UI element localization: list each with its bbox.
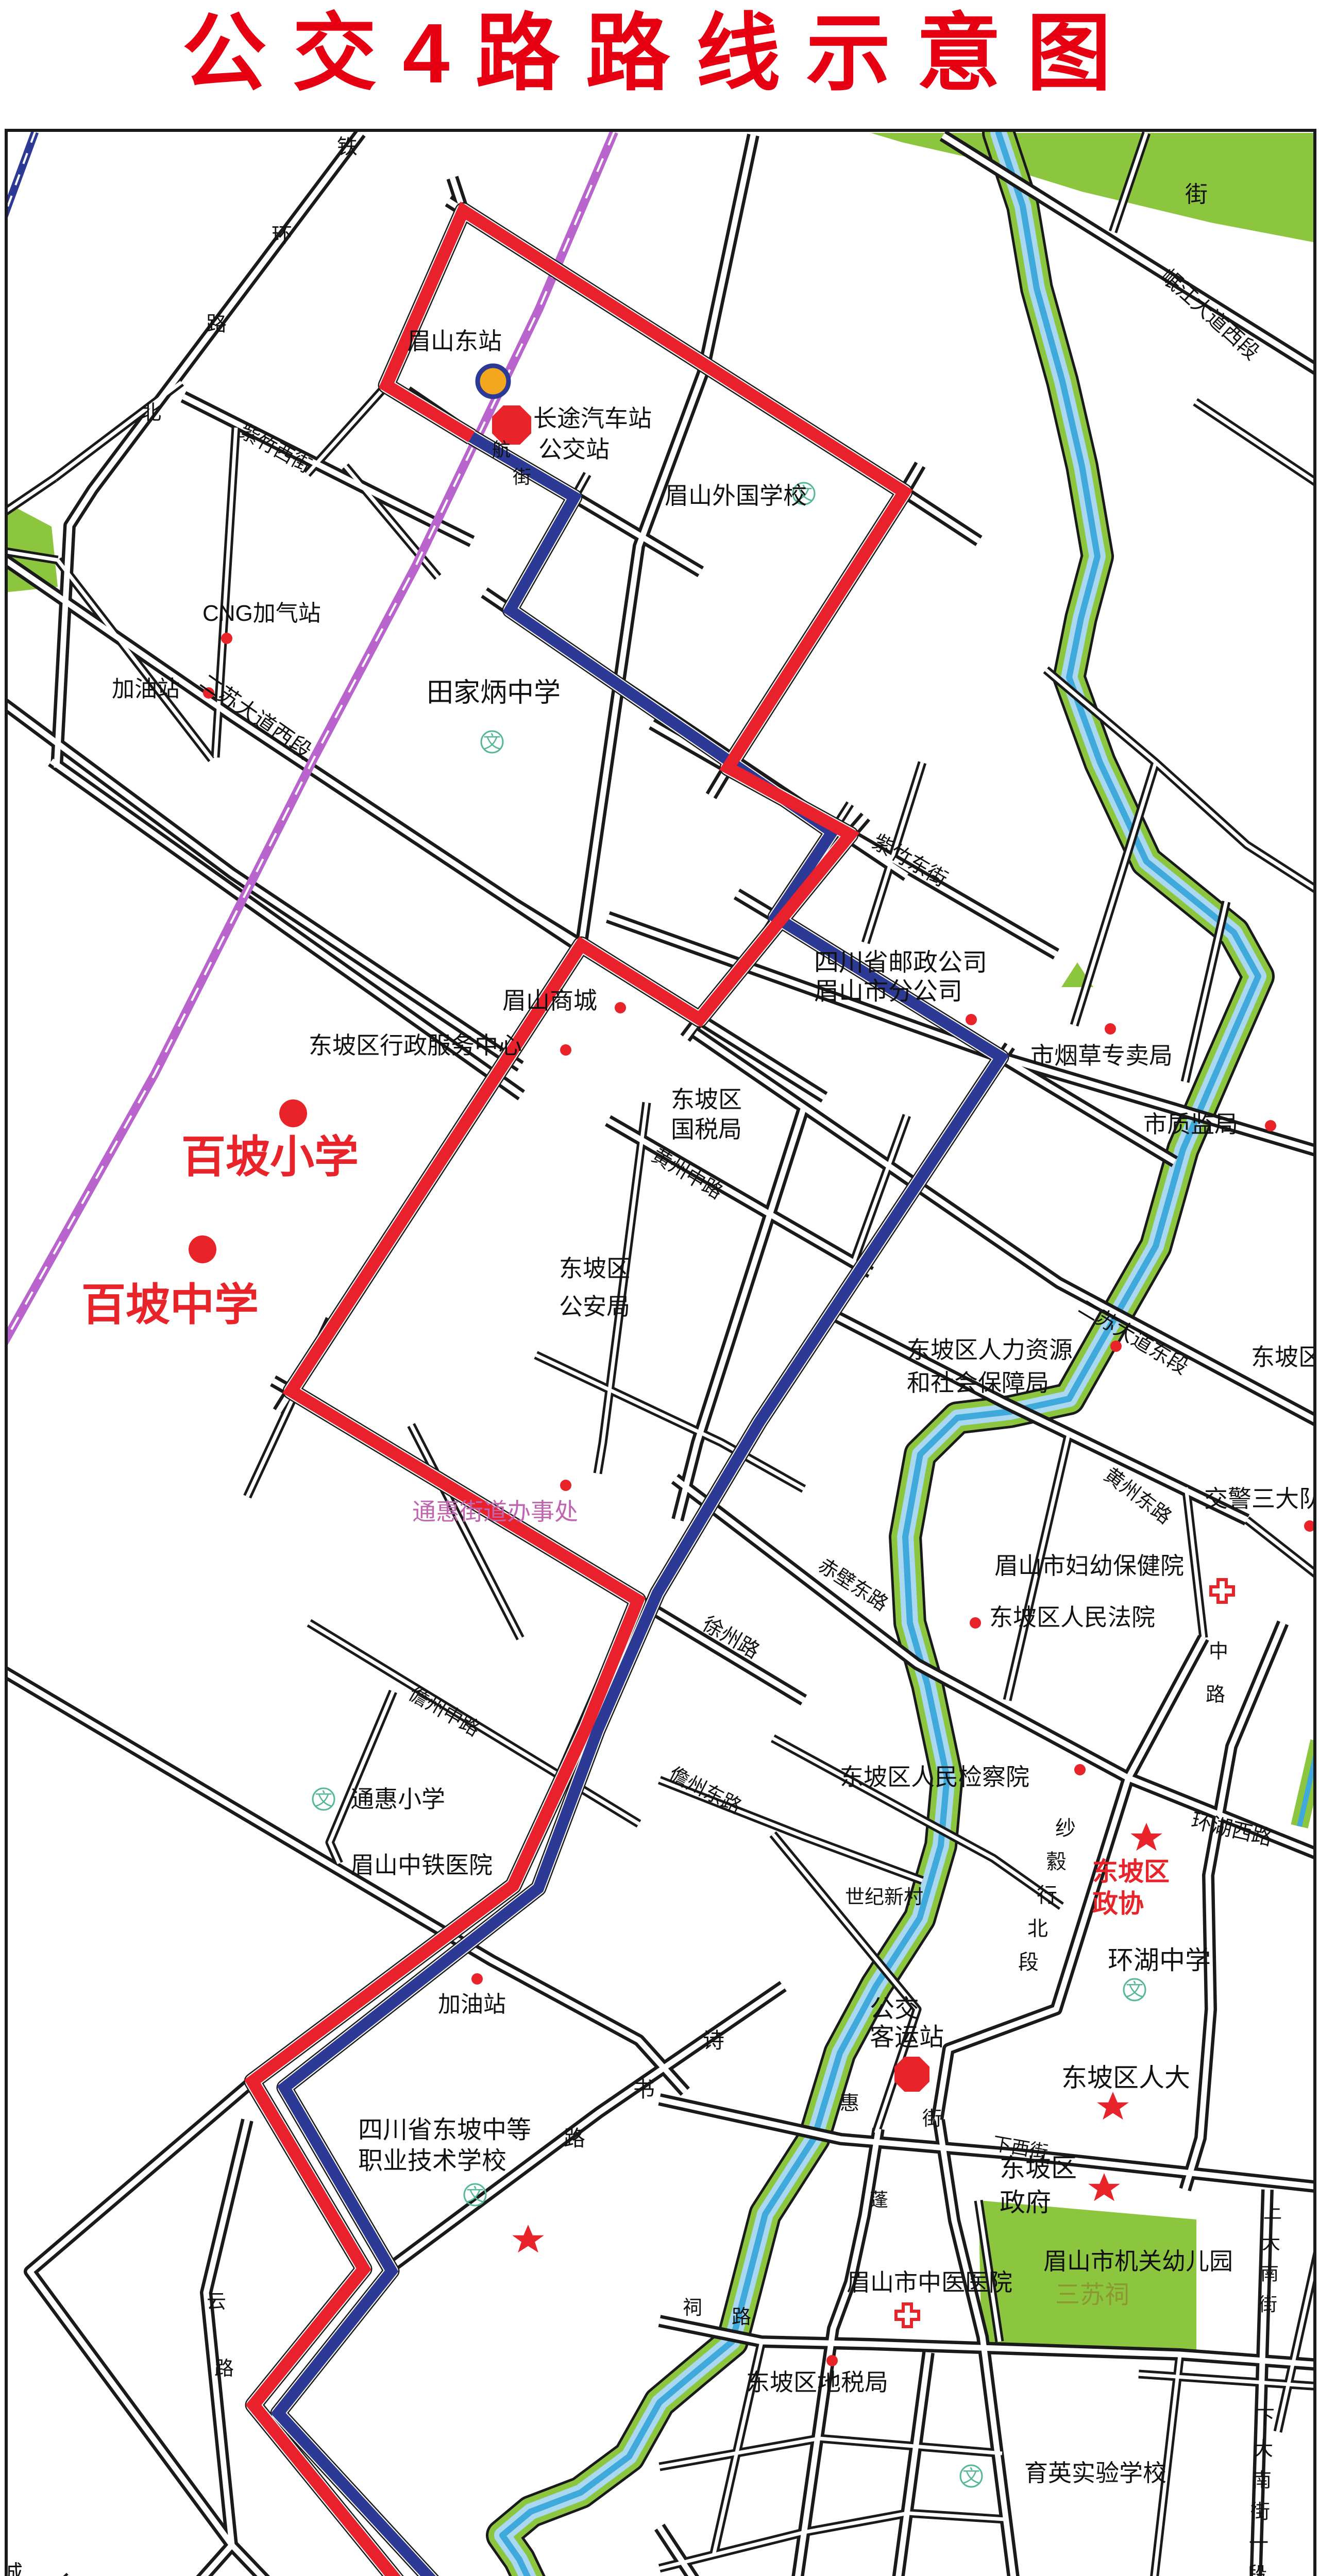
- svg-text:眉山市中医医院: 眉山市中医医院: [847, 2269, 1012, 2296]
- svg-text:通惠小学: 通惠小学: [350, 1786, 445, 1812]
- svg-text:眉山商城: 眉山商城: [502, 987, 597, 1014]
- svg-text:中: 中: [1209, 1641, 1228, 1663]
- svg-text:长途汽车站: 长途汽车站: [533, 405, 652, 432]
- svg-text:东坡区人大: 东坡区人大: [1061, 2063, 1190, 2092]
- svg-text:田家炳中学: 田家炳中学: [427, 678, 561, 708]
- svg-text:文: 文: [315, 1790, 332, 1809]
- svg-text:大: 大: [1262, 2232, 1280, 2253]
- svg-text:东坡区人力资源: 东坡区人力资源: [907, 1336, 1073, 1363]
- svg-text:北: 北: [1027, 1918, 1048, 1940]
- svg-text:通惠街道办事处: 通惠街道办事处: [412, 1498, 578, 1525]
- svg-text:市质监局: 市质监局: [1143, 1111, 1238, 1138]
- svg-text:北: 北: [141, 401, 161, 424]
- svg-text:环: 环: [272, 224, 292, 247]
- svg-text:上: 上: [1263, 2201, 1282, 2222]
- svg-text:纱: 纱: [1055, 1817, 1076, 1840]
- svg-text:文: 文: [962, 2467, 980, 2486]
- svg-text:公交: 公交: [870, 1995, 919, 2023]
- svg-text:大: 大: [1254, 2438, 1273, 2460]
- svg-text:街: 街: [1250, 2501, 1270, 2523]
- svg-text:东坡区行政服务中心: 东坡区行政服务中心: [309, 1032, 522, 1059]
- svg-text:铁: 铁: [337, 135, 358, 158]
- svg-text:段: 段: [1247, 2564, 1267, 2576]
- svg-text:CNG加气站: CNG加气站: [202, 601, 321, 626]
- svg-text:环湖中学: 环湖中学: [1108, 1946, 1211, 1975]
- svg-text:公交4路路线示意图: 公交4路路线示意图: [182, 6, 1137, 100]
- svg-text:东坡区: 东坡区: [1092, 1857, 1170, 1886]
- svg-text:东坡区人民检察院: 东坡区人民检察院: [840, 1764, 1029, 1790]
- svg-text:眉山外国学校: 眉山外国学校: [665, 482, 807, 509]
- svg-text:百坡小学: 百坡小学: [181, 1132, 359, 1182]
- svg-text:加油站: 加油站: [112, 676, 180, 702]
- svg-text:四川省邮政公司: 四川省邮政公司: [814, 949, 987, 976]
- svg-text:南: 南: [1260, 2263, 1279, 2284]
- svg-text:东坡区地税局: 东坡区地税局: [746, 2369, 888, 2396]
- svg-text:路: 路: [206, 313, 227, 335]
- svg-text:文: 文: [466, 2185, 484, 2205]
- svg-text:诗: 诗: [703, 2028, 724, 2053]
- svg-text:东坡区: 东坡区: [1251, 1344, 1319, 1370]
- svg-text:客运站: 客运站: [870, 2024, 944, 2051]
- svg-text:政府: 政府: [1000, 2188, 1051, 2217]
- svg-text:国税局: 国税局: [671, 1116, 742, 1143]
- svg-text:和社会保障局: 和社会保障局: [907, 1369, 1049, 1396]
- svg-text:职业技术学校: 职业技术学校: [358, 2147, 506, 2175]
- svg-text:交警三大队: 交警三大队: [1204, 1485, 1319, 1512]
- svg-text:文: 文: [1126, 1980, 1143, 2000]
- svg-text:眉山市机关幼儿园: 眉山市机关幼儿园: [1043, 2248, 1233, 2275]
- svg-text:公安局: 公安局: [559, 1293, 630, 1320]
- svg-text:公交站: 公交站: [538, 436, 610, 463]
- svg-text:段: 段: [1018, 1951, 1039, 1974]
- svg-text:下: 下: [1255, 2407, 1275, 2429]
- svg-text:世纪新村: 世纪新村: [845, 1887, 923, 1908]
- svg-text:云: 云: [207, 2291, 226, 2313]
- svg-text:祠: 祠: [683, 2297, 702, 2319]
- svg-text:惠: 惠: [840, 2093, 859, 2114]
- svg-text:东坡区: 东坡区: [671, 1086, 742, 1113]
- svg-text:路: 路: [732, 2307, 751, 2328]
- svg-text:眉山市分公司: 眉山市分公司: [814, 978, 962, 1005]
- svg-text:路: 路: [1206, 1684, 1225, 1706]
- svg-text:三苏祠: 三苏祠: [1055, 2281, 1129, 2309]
- svg-text:行: 行: [1037, 1884, 1057, 1907]
- svg-text:眉山市妇幼保健院: 眉山市妇幼保健院: [994, 1552, 1184, 1579]
- svg-text:政协: 政协: [1092, 1889, 1144, 1918]
- svg-text:眉山中铁医院: 眉山中铁医院: [350, 1852, 493, 1878]
- svg-text:东坡区人民法院: 东坡区人民法院: [989, 1604, 1155, 1631]
- svg-text:街: 街: [513, 466, 531, 487]
- svg-text:蓬: 蓬: [870, 2189, 888, 2210]
- svg-text:加油站: 加油站: [438, 1992, 506, 2017]
- svg-text:育英实验学校: 育英实验学校: [1024, 2460, 1166, 2486]
- svg-text:路: 路: [214, 2358, 234, 2380]
- svg-text:市烟草专卖局: 市烟草专卖局: [1030, 1042, 1173, 1069]
- svg-text:街: 街: [922, 2108, 942, 2130]
- svg-text:文: 文: [483, 733, 501, 752]
- svg-text:一: 一: [1249, 2533, 1269, 2554]
- svg-text:縠: 縠: [1046, 1851, 1067, 1873]
- svg-text:航: 航: [492, 439, 511, 460]
- svg-text:路: 路: [564, 2126, 585, 2150]
- svg-text:四川省东坡中等: 四川省东坡中等: [358, 2116, 531, 2144]
- svg-text:南: 南: [1252, 2470, 1272, 2492]
- svg-text:书: 书: [633, 2077, 655, 2102]
- svg-text:眉山东站: 眉山东站: [407, 328, 502, 354]
- svg-text:街: 街: [1185, 182, 1208, 207]
- svg-text:东坡区: 东坡区: [559, 1255, 630, 1282]
- svg-text:街: 街: [1259, 2294, 1277, 2315]
- svg-text:百坡中学: 百坡中学: [81, 1280, 259, 1330]
